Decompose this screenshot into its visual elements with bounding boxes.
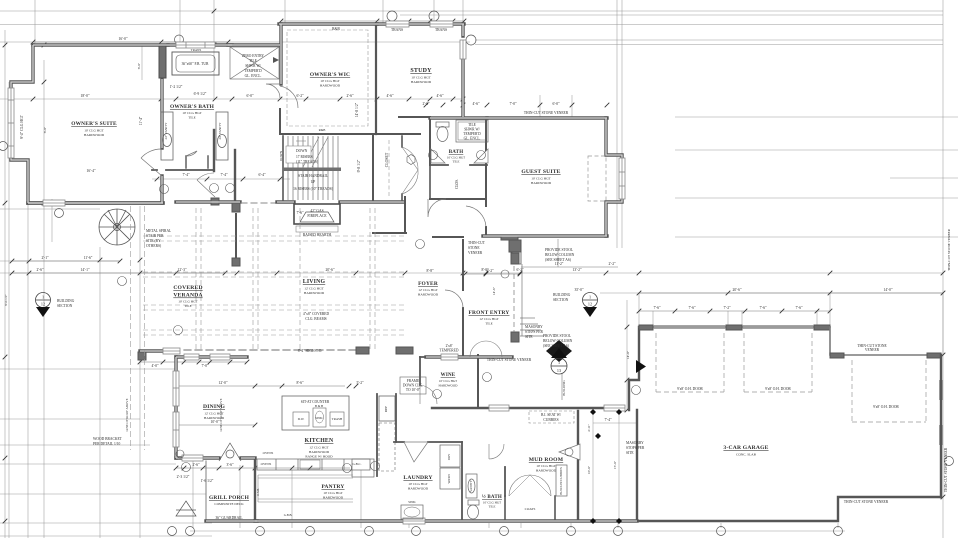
svg-text:2'-3 1/2": 2'-3 1/2" bbox=[177, 475, 190, 479]
svg-text:7'-0": 7'-0" bbox=[509, 102, 517, 106]
svg-text:VERANDA: VERANDA bbox=[173, 293, 202, 299]
svg-text:10'-0": 10'-0" bbox=[211, 420, 220, 424]
svg-text:12'-0": 12'-0" bbox=[219, 381, 228, 385]
svg-text:TILE: TILE bbox=[468, 123, 477, 127]
svg-text:10' CLG HGT: 10' CLG HGT bbox=[411, 76, 431, 80]
svg-text:2'-6": 2'-6" bbox=[346, 94, 354, 98]
svg-text:10' CLG HGT: 10' CLG HGT bbox=[408, 482, 428, 486]
svg-text:HARDWOOD: HARDWOOD bbox=[304, 291, 325, 295]
svg-text:4'-6": 4'-6" bbox=[436, 94, 444, 98]
svg-text:OVENS: OVENS bbox=[261, 462, 272, 466]
svg-text:10' CLG HGT: 10' CLG HGT bbox=[531, 177, 551, 181]
svg-text:SECTION: SECTION bbox=[553, 298, 569, 302]
svg-text:LAUNDRY: LAUNDRY bbox=[403, 475, 432, 481]
svg-text:STOPS PER: STOPS PER bbox=[626, 446, 645, 450]
svg-text:HARDWOOD: HARDWOOD bbox=[536, 469, 557, 473]
svg-text:FRONT ENTRY: FRONT ENTRY bbox=[469, 310, 510, 316]
svg-text:MASONRY: MASONRY bbox=[525, 325, 543, 329]
svg-text:B & B: B & B bbox=[315, 404, 323, 408]
svg-text:PER DETAIL 1/10: PER DETAIL 1/10 bbox=[93, 442, 121, 446]
svg-text:HARDWOOD: HARDWOOD bbox=[309, 450, 330, 454]
svg-text:FOYER: FOYER bbox=[418, 281, 438, 287]
svg-text:3'-6": 3'-6" bbox=[226, 463, 234, 467]
svg-text:OWNER'S SUITE: OWNER'S SUITE bbox=[71, 121, 117, 127]
svg-text:8'-8": 8'-8" bbox=[426, 269, 434, 273]
svg-text:PANTRY: PANTRY bbox=[321, 484, 344, 490]
svg-text:THIN-CUT STONE VENEER: THIN-CUT STONE VENEER bbox=[524, 111, 569, 115]
svg-text:HARDWOOD: HARDWOOD bbox=[418, 293, 439, 297]
svg-text:1'-6 1/2": 1'-6 1/2" bbox=[201, 479, 214, 483]
svg-text:7'-4": 7'-4" bbox=[182, 173, 190, 177]
svg-text:D.W.: D.W. bbox=[298, 417, 305, 421]
svg-text:3-CAR GARAGE: 3-CAR GARAGE bbox=[723, 445, 768, 451]
svg-text:SITE (BY: SITE (BY bbox=[146, 239, 161, 243]
svg-text:SITE: SITE bbox=[525, 335, 533, 339]
svg-text:5'-2": 5'-2" bbox=[356, 381, 364, 385]
svg-text:7'-6": 7'-6" bbox=[759, 306, 767, 310]
svg-text:PROVIDE STOOL: PROVIDE STOOL bbox=[545, 248, 573, 252]
svg-text:STONE: STONE bbox=[468, 246, 480, 250]
svg-text:THIN-CUT STONE VENEER: THIN-CUT STONE VENEER bbox=[947, 228, 951, 271]
svg-text:SINK: SINK bbox=[408, 500, 416, 504]
svg-text:4'-11": 4'-11" bbox=[587, 424, 591, 432]
svg-text:DOWN: DOWN bbox=[296, 149, 308, 153]
svg-text:GUEST SUITE: GUEST SUITE bbox=[521, 169, 560, 175]
svg-text:CLOS.: CLOS. bbox=[455, 179, 459, 189]
svg-text:10'-0": 10'-0" bbox=[587, 465, 591, 474]
svg-text:1: 1 bbox=[589, 295, 591, 300]
svg-text:20'-6": 20'-6" bbox=[326, 268, 335, 272]
svg-text:7'-6": 7'-6" bbox=[653, 306, 661, 310]
svg-text:TILE: TILE bbox=[188, 116, 195, 120]
svg-text:O.S.B.: O.S.B. bbox=[256, 488, 260, 496]
svg-text:R&B: R&B bbox=[319, 128, 326, 132]
svg-text:OWNER'S WIC: OWNER'S WIC bbox=[310, 72, 350, 78]
svg-text:20'-6": 20'-6" bbox=[733, 288, 742, 292]
svg-text:LINE OF ROOF ABOVE: LINE OF ROOF ABOVE bbox=[125, 398, 129, 431]
svg-text:14'-1": 14'-1" bbox=[81, 268, 90, 272]
svg-text:TO 10'-0": TO 10'-0" bbox=[406, 388, 421, 392]
svg-text:4'-6": 4'-6" bbox=[386, 94, 394, 98]
svg-text:DRY: DRY bbox=[447, 453, 451, 460]
svg-text:BUILDING: BUILDING bbox=[553, 293, 571, 297]
svg-text:BUILT-IN CUBBIES: BUILT-IN CUBBIES bbox=[559, 467, 563, 495]
svg-text:16'-0": 16'-0" bbox=[119, 37, 128, 41]
svg-text:THIN-CUT STONE VENEER: THIN-CUT STONE VENEER bbox=[944, 447, 948, 492]
svg-text:RANGE W/ HOOD: RANGE W/ HOOD bbox=[305, 455, 333, 459]
svg-text:HARDWOOD: HARDWOOD bbox=[411, 80, 432, 84]
svg-text:THIN-CUT STONE VENEER: THIN-CUT STONE VENEER bbox=[844, 500, 889, 504]
svg-text:16'-4": 16'-4" bbox=[87, 169, 96, 173]
svg-text:6'-0": 6'-0" bbox=[137, 62, 141, 69]
svg-text:LINE OF ROOF ABOVE: LINE OF ROOF ABOVE bbox=[219, 398, 223, 431]
svg-text:WASH: WASH bbox=[447, 474, 451, 484]
svg-text:TILE: TILE bbox=[184, 304, 191, 308]
svg-text:FRAME: FRAME bbox=[407, 379, 420, 383]
svg-text:2'-6": 2'-6" bbox=[192, 463, 200, 467]
svg-text:DOWN: DOWN bbox=[279, 150, 283, 161]
svg-text:BELOW COLUMN: BELOW COLUMN bbox=[543, 339, 573, 343]
svg-text:7'-6": 7'-6" bbox=[795, 306, 803, 310]
svg-text:10' CLG HGT: 10' CLG HGT bbox=[323, 491, 343, 495]
svg-text:(SEE SHEET A6): (SEE SHEET A6) bbox=[543, 344, 570, 348]
svg-text:24" VANITY: 24" VANITY bbox=[164, 122, 168, 140]
svg-text:4"x8" COVERED: 4"x8" COVERED bbox=[303, 312, 330, 316]
svg-text:OVENS: OVENS bbox=[263, 451, 274, 455]
svg-text:LIVING: LIVING bbox=[303, 279, 326, 285]
svg-text:12' CLG HGT: 12' CLG HGT bbox=[304, 287, 324, 291]
svg-text:9'-4" CLG HGT: 9'-4" CLG HGT bbox=[20, 114, 24, 139]
svg-text:14'-0": 14'-0" bbox=[884, 288, 893, 292]
svg-text:2'-1": 2'-1" bbox=[41, 256, 49, 260]
svg-text:MUD ROOM: MUD ROOM bbox=[529, 457, 564, 463]
svg-text:TRANS: TRANS bbox=[191, 48, 202, 52]
svg-text:36" GUARDRAIL: 36" GUARDRAIL bbox=[215, 516, 242, 520]
svg-text:STAIR PER: STAIR PER bbox=[146, 234, 164, 238]
svg-text:SHWR W/: SHWR W/ bbox=[464, 128, 480, 132]
svg-text:VENEER: VENEER bbox=[865, 348, 880, 352]
svg-text:2'-6": 2'-6" bbox=[36, 268, 44, 272]
svg-text:15'-0": 15'-0" bbox=[613, 460, 617, 469]
svg-text:10' CLG HGT: 10' CLG HGT bbox=[178, 300, 198, 304]
svg-text:6'-9 1/2": 6'-9 1/2" bbox=[194, 92, 207, 96]
svg-text:18'-0": 18'-0" bbox=[81, 94, 90, 98]
svg-text:GRILL PORCH: GRILL PORCH bbox=[209, 495, 250, 501]
svg-text:6'-4": 6'-4" bbox=[258, 173, 266, 177]
svg-text:VENEER: VENEER bbox=[468, 251, 483, 255]
svg-text:WOOD BRACKET: WOOD BRACKET bbox=[93, 437, 123, 441]
svg-text:CUBBIES: CUBBIES bbox=[543, 418, 558, 422]
svg-text:TILE: TILE bbox=[249, 59, 258, 63]
svg-text:7'-2": 7'-2" bbox=[723, 306, 731, 310]
svg-text:10' CLG HGT: 10' CLG HGT bbox=[320, 79, 340, 83]
svg-text:6'-2": 6'-2" bbox=[296, 94, 304, 98]
svg-text:BELOW COLUMN: BELOW COLUMN bbox=[545, 253, 575, 257]
svg-text:TEMPERED: TEMPERED bbox=[440, 349, 459, 353]
svg-text:TEMPER'D: TEMPER'D bbox=[463, 132, 481, 136]
svg-text:TEMPER'D: TEMPER'D bbox=[244, 69, 262, 73]
svg-text:24" VANITY: 24" VANITY bbox=[218, 122, 222, 140]
svg-text:GL. ENCL.: GL. ENCL. bbox=[464, 137, 481, 141]
svg-text:DOWN CLG.: DOWN CLG. bbox=[403, 384, 423, 388]
svg-text:KITCHEN: KITCHEN bbox=[305, 438, 334, 444]
svg-text:8'-0 1/2": 8'-0 1/2" bbox=[4, 294, 8, 306]
svg-text:42" GAS: 42" GAS bbox=[310, 209, 323, 213]
svg-text:4'-6": 4'-6" bbox=[472, 102, 480, 106]
svg-text:SECTION: SECTION bbox=[57, 304, 73, 308]
svg-text:7'-4": 7'-4" bbox=[604, 418, 612, 422]
svg-text:HARDWOOD: HARDWOOD bbox=[439, 384, 459, 388]
svg-text:TILE: TILE bbox=[453, 160, 460, 164]
svg-text:HARDWOOD: HARDWOOD bbox=[531, 181, 552, 185]
svg-text:HARDWOOD: HARDWOOD bbox=[323, 496, 344, 500]
svg-text:WINE: WINE bbox=[441, 373, 456, 378]
svg-text:COVERED: COVERED bbox=[173, 285, 202, 291]
svg-text:COATS: COATS bbox=[525, 507, 536, 511]
svg-text:TILE: TILE bbox=[485, 322, 492, 326]
svg-text:10' CLG HGT: 10' CLG HGT bbox=[439, 379, 457, 383]
svg-text:ZERO ENTRY: ZERO ENTRY bbox=[242, 54, 264, 58]
svg-text:STAIR HANDRAIL: STAIR HANDRAIL bbox=[298, 174, 328, 178]
svg-text:SHWR W/: SHWR W/ bbox=[245, 64, 261, 68]
svg-text:17 RISERS: 17 RISERS bbox=[296, 155, 313, 159]
svg-text:11'-6": 11'-6" bbox=[84, 256, 93, 260]
svg-text:HARDWOOD: HARDWOOD bbox=[84, 133, 105, 137]
svg-text:REF: REF bbox=[384, 406, 388, 412]
svg-text:TRANS: TRANS bbox=[435, 28, 447, 32]
svg-text:12: 12 bbox=[588, 302, 592, 307]
svg-text:10' CLG HGT: 10' CLG HGT bbox=[536, 464, 556, 468]
svg-text:8'-0": 8'-0" bbox=[481, 268, 489, 272]
svg-text:10' CLG HGT: 10' CLG HGT bbox=[84, 129, 104, 133]
svg-text:B.I. SEAT W/: B.I. SEAT W/ bbox=[541, 413, 561, 417]
svg-text:13'-2": 13'-2" bbox=[573, 268, 582, 272]
svg-text:PROVIDE STOOL: PROVIDE STOOL bbox=[543, 334, 571, 338]
svg-text:16 RISERS (10" TREADS): 16 RISERS (10" TREADS) bbox=[293, 187, 334, 191]
svg-text:14'-6": 14'-6" bbox=[492, 286, 496, 295]
svg-text:7'-6": 7'-6" bbox=[688, 306, 696, 310]
svg-text:35'-0": 35'-0" bbox=[575, 288, 584, 292]
svg-text:8'-6": 8'-6" bbox=[296, 381, 304, 385]
svg-text:G.B.C.: G.B.C. bbox=[353, 462, 362, 466]
svg-text:9'x8' O.H. DOOR: 9'x8' O.H. DOOR bbox=[677, 387, 703, 391]
svg-text:½ BATH: ½ BATH bbox=[482, 495, 502, 500]
svg-text:HARDWOOD: HARDWOOD bbox=[408, 487, 429, 491]
svg-text:UP: UP bbox=[311, 180, 316, 184]
svg-text:BATH: BATH bbox=[449, 150, 464, 155]
svg-text:SITE: SITE bbox=[626, 451, 634, 455]
svg-text:TILE: TILE bbox=[489, 505, 496, 509]
svg-text:TRANS: TRANS bbox=[391, 28, 403, 32]
svg-text:13: 13 bbox=[557, 368, 561, 373]
svg-text:12' CLG HGT: 12' CLG HGT bbox=[309, 446, 329, 450]
svg-text:1: 1 bbox=[558, 360, 560, 365]
svg-text:OWNER'S BATH: OWNER'S BATH bbox=[170, 104, 215, 110]
svg-text:BUILDING: BUILDING bbox=[57, 299, 75, 303]
svg-text:7'-6": 7'-6" bbox=[296, 211, 304, 215]
svg-text:6'-2": 6'-2" bbox=[516, 268, 524, 272]
svg-text:1'-2 1/2": 1'-2 1/2" bbox=[170, 85, 183, 89]
svg-text:METAL SPIRAL: METAL SPIRAL bbox=[146, 229, 171, 233]
svg-text:OTHERS): OTHERS) bbox=[146, 244, 162, 248]
svg-text:FIREPLACE: FIREPLACE bbox=[307, 214, 327, 218]
svg-text:2'x8': 2'x8' bbox=[446, 344, 453, 348]
svg-text:1: 1 bbox=[42, 295, 44, 300]
svg-text:(11" TREADS): (11" TREADS) bbox=[296, 160, 319, 164]
svg-text:VANITY: VANITY bbox=[469, 479, 473, 492]
svg-text:7'-0": 7'-0" bbox=[201, 364, 209, 368]
svg-text:4'-0": 4'-0" bbox=[151, 364, 159, 368]
svg-text:12' CLG HGT: 12' CLG HGT bbox=[418, 288, 438, 292]
svg-text:11'-4": 11'-4" bbox=[139, 116, 143, 125]
svg-text:14'-0": 14'-0" bbox=[626, 350, 630, 359]
svg-text:CONC. SLAB: CONC. SLAB bbox=[736, 453, 757, 457]
svg-text:RAISED HEARTH: RAISED HEARTH bbox=[303, 233, 332, 237]
svg-text:9'x8' O.H. DOOR: 9'x8' O.H. DOOR bbox=[873, 405, 899, 409]
svg-text:6'-0": 6'-0" bbox=[43, 126, 47, 133]
svg-text:HARDWOOD: HARDWOOD bbox=[320, 84, 341, 88]
svg-text:G.B.B.: G.B.B. bbox=[284, 513, 293, 517]
svg-text:9'-8 1/2": 9'-8 1/2" bbox=[357, 159, 361, 172]
svg-text:SINK: SINK bbox=[315, 416, 323, 420]
svg-text:12'-3": 12'-3" bbox=[178, 268, 187, 272]
svg-text:2'-2": 2'-2" bbox=[608, 262, 616, 266]
svg-text:STEPS PER: STEPS PER bbox=[525, 330, 543, 334]
svg-text:36"x60" F.B. TUB: 36"x60" F.B. TUB bbox=[182, 62, 209, 66]
svg-text:THIN-CUT STONE VENEER: THIN-CUT STONE VENEER bbox=[487, 358, 532, 362]
svg-text:11'-2": 11'-2" bbox=[555, 262, 564, 266]
svg-text:GL. ENCL.: GL. ENCL. bbox=[245, 74, 262, 78]
svg-text:2'-6": 2'-6" bbox=[422, 102, 430, 106]
svg-text:STUDY: STUDY bbox=[410, 68, 432, 74]
svg-text:CLOSET: CLOSET bbox=[385, 152, 389, 167]
svg-text:8'-4" HIGH C.O.: 8'-4" HIGH C.O. bbox=[298, 349, 323, 353]
svg-text:9'x8' O.H. DOOR: 9'x8' O.H. DOOR bbox=[765, 387, 791, 391]
svg-text:12: 12 bbox=[41, 302, 45, 307]
svg-text:CLG. BEAMS: CLG. BEAMS bbox=[305, 317, 326, 321]
svg-text:R&B: R&B bbox=[332, 27, 340, 31]
svg-text:COMPOSITE DECK: COMPOSITE DECK bbox=[214, 502, 244, 506]
svg-text:6'-0": 6'-0" bbox=[552, 102, 560, 106]
svg-text:10' CLG HGT: 10' CLG HGT bbox=[182, 111, 202, 115]
svg-text:12' CLG HGT: 12' CLG HGT bbox=[479, 317, 499, 321]
svg-text:7'-4": 7'-4" bbox=[220, 173, 228, 177]
svg-text:MASONRY: MASONRY bbox=[626, 441, 644, 445]
svg-text:6'-0": 6'-0" bbox=[246, 94, 254, 98]
svg-text:14'-8 1/2": 14'-8 1/2" bbox=[355, 102, 359, 117]
svg-text:THIN-CUT: THIN-CUT bbox=[468, 241, 486, 245]
svg-text:TRASH: TRASH bbox=[332, 417, 343, 421]
